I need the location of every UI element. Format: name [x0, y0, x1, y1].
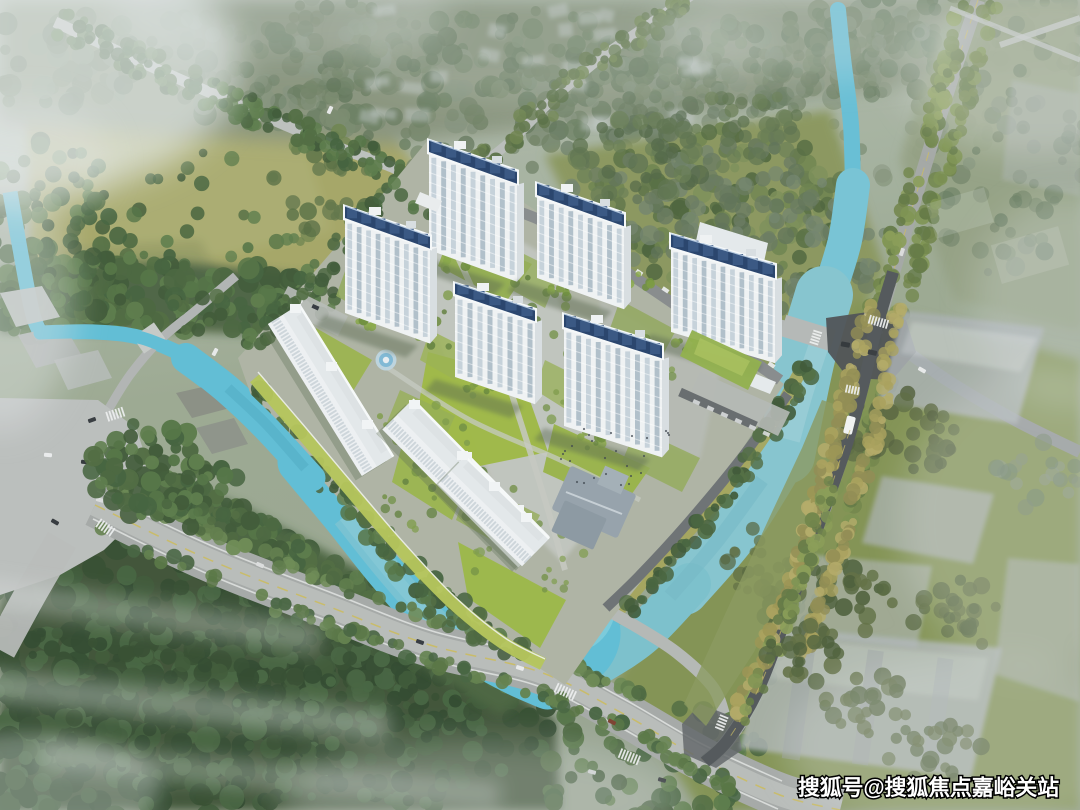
svg-text:搜狐号@搜狐焦点嘉峪关站: 搜狐号@搜狐焦点嘉峪关站 — [798, 775, 1059, 800]
